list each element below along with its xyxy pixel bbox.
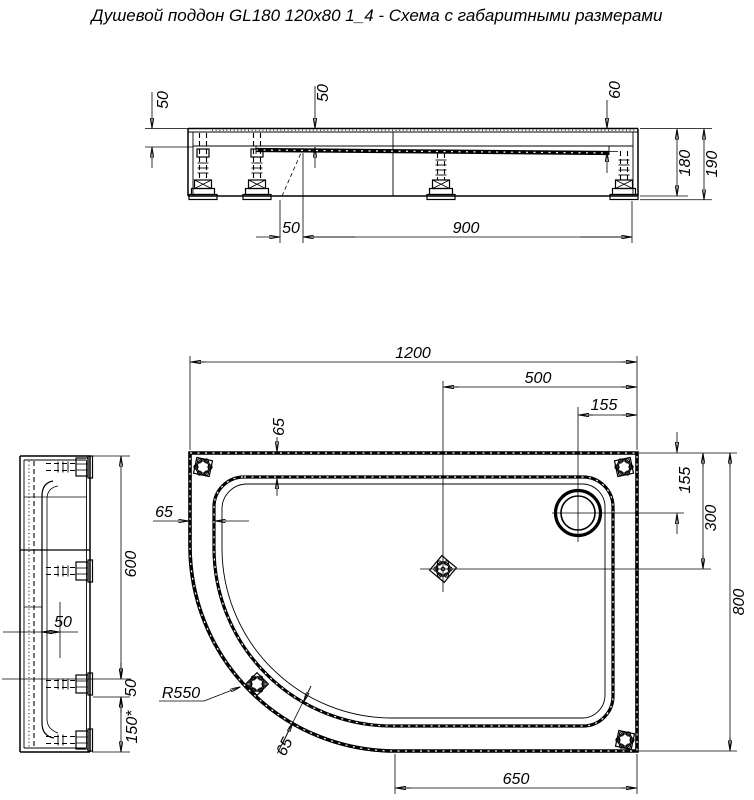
- dim-front-total-height: 190: [704, 151, 721, 178]
- side-inner-contour: [42, 481, 54, 738]
- side-leg-2: [46, 560, 93, 582]
- drawing-title: Душевой поддон GL180 120x80 1_4 - Схема …: [90, 6, 663, 25]
- dim-plan-width: 1200: [395, 345, 431, 362]
- front-leg-4: [610, 151, 638, 200]
- dim-front-foot-offset: 50: [282, 220, 300, 237]
- dim-front-body-height: 180: [677, 150, 694, 177]
- dim-plan-rim-diagonal: 65: [273, 735, 296, 759]
- dim-plan-corner-radius: R550: [162, 685, 200, 702]
- side-view: 600 50 150* 50: [2, 456, 141, 752]
- tray-rim-contour: [214, 477, 613, 726]
- foot-top-left: [194, 458, 213, 477]
- dim-plan-hole-from-right: 155: [591, 397, 618, 414]
- front-elevation-view: 50 50 60 180 190 50 900: [145, 81, 721, 243]
- dim-plan-hole-from-top: 155: [677, 467, 694, 494]
- dim-front-depth-left: 50: [155, 91, 172, 109]
- foot-bottom-right: [616, 731, 635, 750]
- drain-leader-dashed: [282, 153, 301, 196]
- dim-side-inner-offset: 50: [54, 614, 72, 631]
- dim-plan-drain-from-top: 300: [703, 505, 720, 532]
- dim-plan-rim-top: 65: [271, 418, 288, 436]
- dim-front-foot-span: 900: [453, 220, 480, 237]
- dim-side-edge-zone: 150*: [124, 710, 141, 744]
- dim-front-depth-mid: 50: [315, 84, 332, 102]
- dim-side-foot-gap: 50: [123, 679, 140, 697]
- plan-view: 1200 500 155 65 65 155 300 800: [153, 345, 748, 794]
- dim-plan-bottom-flat: 650: [503, 771, 530, 788]
- front-leg-2: [243, 133, 271, 200]
- side-leg-3: [46, 673, 93, 695]
- dim-front-depth-right: 60: [607, 81, 624, 99]
- foot-top-right: [615, 458, 634, 477]
- front-leg-3: [427, 153, 455, 200]
- dim-plan-drain-from-right: 500: [525, 370, 552, 387]
- dim-side-length: 600: [123, 551, 140, 578]
- dim-plan-depth: 800: [731, 589, 748, 616]
- technical-drawing: Душевой поддон GL180 120x80 1_4 - Схема …: [0, 0, 754, 800]
- dim-plan-rim-left: 65: [155, 504, 173, 521]
- side-leg-1: [46, 456, 93, 478]
- schematic-page: Душевой поддон GL180 120x80 1_4 - Схема …: [0, 0, 754, 800]
